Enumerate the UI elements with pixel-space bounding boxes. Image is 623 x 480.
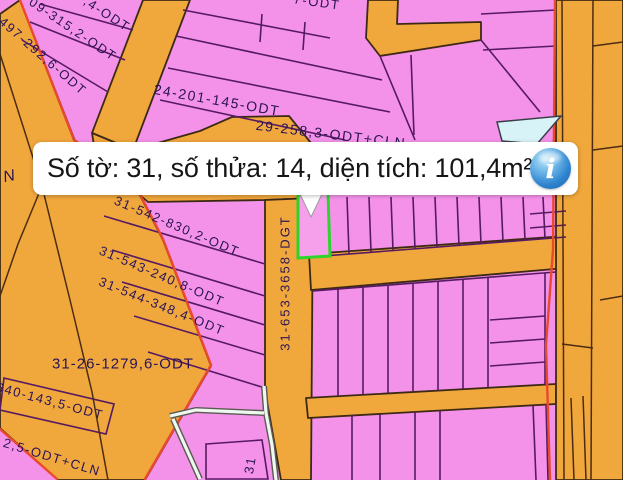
label-parcel-31-partial: 31 <box>241 455 259 475</box>
parcel-info-text: Số tờ: 31, số thửa: 14, diện tích: 101,4… <box>47 142 532 195</box>
info-icon-glyph: i <box>530 151 571 189</box>
info-icon[interactable]: i <box>530 148 571 189</box>
map-app-screen: ,4-ODT 09-315,2-ODT 497-292,6-ODT 7-ODT … <box>0 0 623 480</box>
road-right-band[interactable] <box>556 0 623 480</box>
label-road-dgt: 31-653-3658-DGT <box>278 215 293 351</box>
label-parcel-26: 31-26-1279,6-ODT <box>52 356 194 373</box>
parcel-info-popup: Số tờ: 31, số thửa: 14, diện tích: 101,4… <box>33 142 578 195</box>
popup-caret <box>297 192 325 219</box>
